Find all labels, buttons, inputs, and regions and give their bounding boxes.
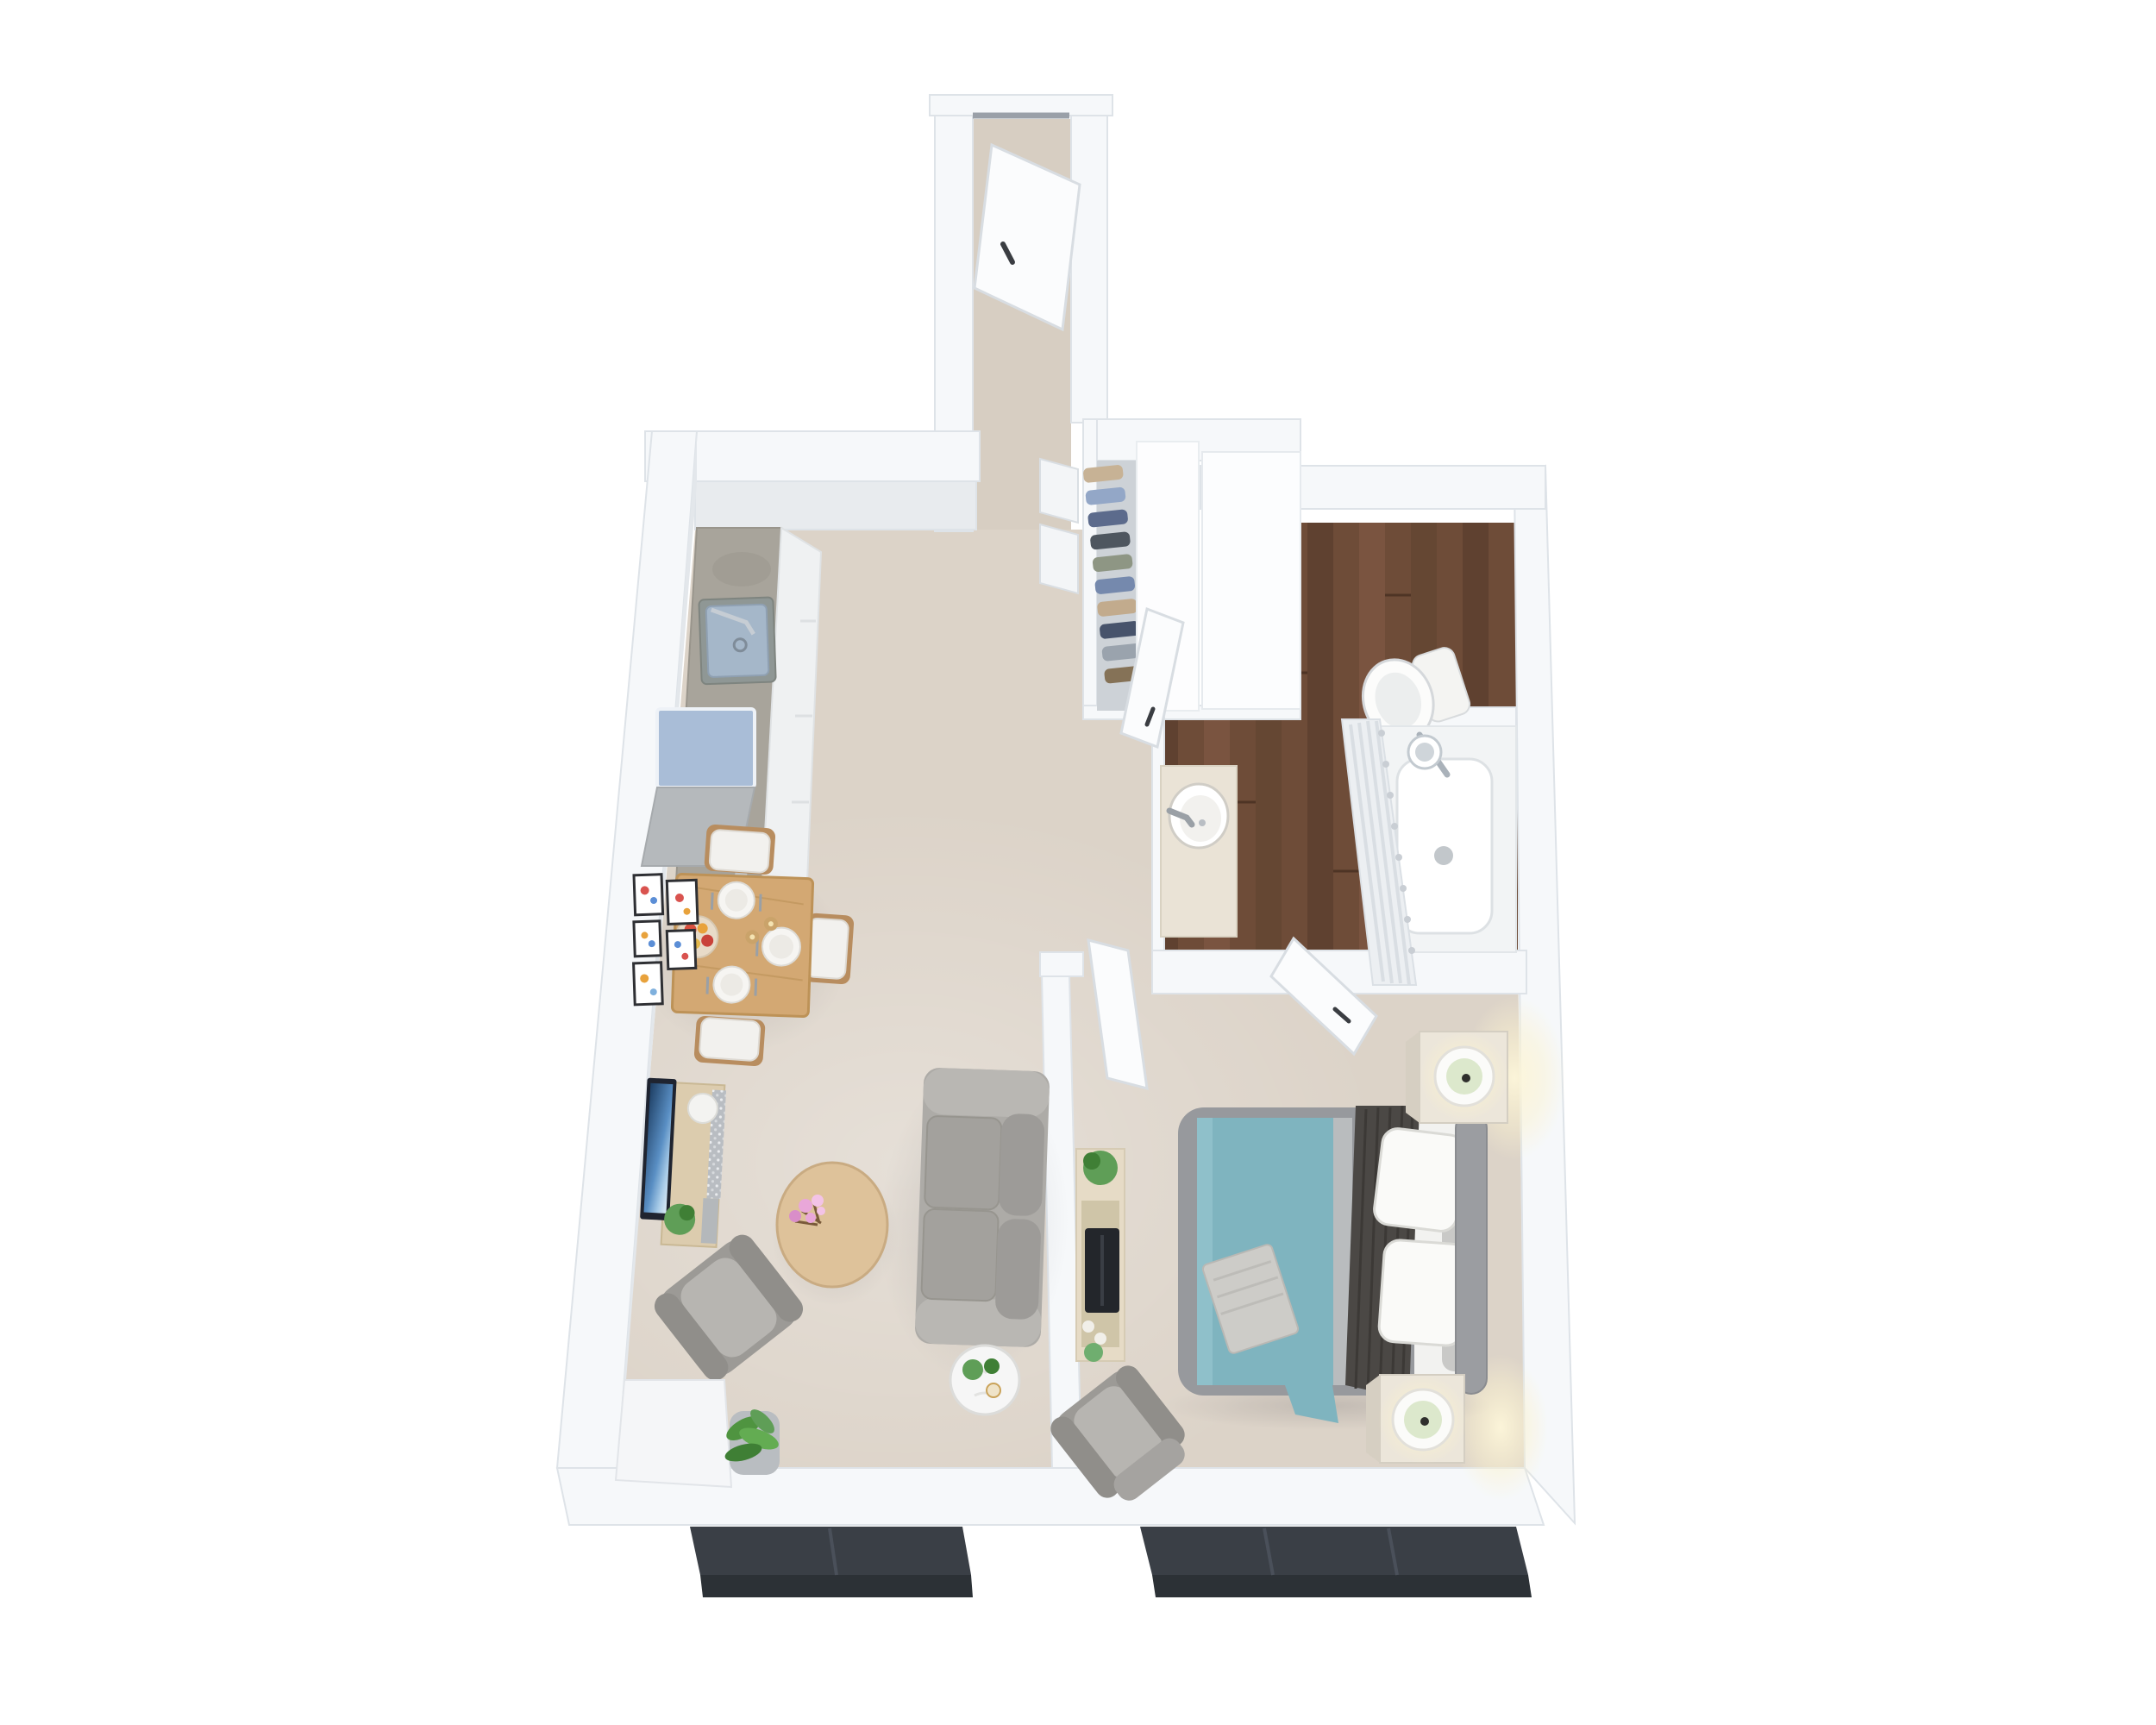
storage-bin	[1040, 459, 1078, 523]
decor-plate	[687, 1093, 718, 1124]
gold-dish	[987, 1383, 1000, 1397]
pillow	[1373, 1127, 1467, 1233]
sill-face	[700, 1575, 973, 1597]
bedroom-media-console	[1076, 1149, 1125, 1362]
candle-cup	[1082, 1320, 1094, 1333]
dining-chair	[704, 824, 776, 875]
sill-face	[1152, 1575, 1532, 1597]
sofa-back-cushion	[995, 1219, 1042, 1320]
headboard	[1456, 1113, 1487, 1394]
duvet-fold	[1197, 1118, 1213, 1385]
sink-drain	[1199, 819, 1206, 826]
living-room-window	[690, 1527, 973, 1597]
counter-texture	[712, 552, 771, 586]
console-bracket	[701, 1198, 719, 1244]
hall-right-wall	[1071, 112, 1107, 423]
potted-plant-icon	[962, 1359, 983, 1380]
wardrobe-panel	[1202, 452, 1300, 709]
nightstand	[1406, 1032, 1509, 1123]
dividing-wall-cap	[1040, 952, 1083, 976]
cooktop-blue	[657, 709, 755, 787]
floorplan-canvas	[0, 0, 2156, 1725]
side-table	[950, 1345, 1019, 1414]
sink-vanity	[1161, 766, 1237, 937]
floorplan-svg	[0, 0, 2156, 1725]
chair-cushion	[709, 830, 770, 874]
sofa-armrest	[923, 1068, 1050, 1119]
kitchen-sink	[699, 597, 775, 684]
potted-plant-icon	[984, 1358, 1000, 1374]
sofa-back-cushion	[999, 1113, 1045, 1217]
chair-cushion	[699, 1018, 761, 1062]
lamp-finial	[1420, 1417, 1429, 1426]
storage-bin	[1040, 524, 1078, 593]
corner-cabinet	[616, 1380, 731, 1487]
plank	[1307, 517, 1333, 959]
side-table-top	[950, 1345, 1019, 1414]
art-frame	[634, 921, 661, 957]
entry-door-frame	[930, 95, 1112, 116]
art-frame	[667, 880, 698, 924]
dining-chair	[693, 1015, 766, 1066]
pillow	[1378, 1239, 1468, 1346]
sill-top	[1140, 1527, 1528, 1575]
nightstand-side	[1366, 1375, 1380, 1463]
bedroom-window	[1140, 1527, 1532, 1597]
green-vase	[1084, 1343, 1103, 1362]
sofa-seat-cushion	[924, 1116, 1002, 1210]
nightstand-side	[1406, 1032, 1420, 1123]
windows	[690, 1527, 1532, 1597]
tub-basin	[1397, 759, 1492, 933]
console-plant-icon	[1083, 1152, 1100, 1170]
art-frame	[634, 875, 663, 915]
art-frame	[667, 930, 696, 969]
art-frame	[634, 963, 663, 1005]
tub-drain	[1434, 846, 1453, 865]
nightstand	[1366, 1375, 1468, 1465]
candle-cup	[1094, 1333, 1106, 1345]
lamp-finial	[1462, 1074, 1470, 1082]
kitchen-top-wall-inner-face	[695, 481, 976, 530]
coffee-table-top	[777, 1163, 887, 1287]
sofa-seat-cushion	[921, 1209, 999, 1302]
